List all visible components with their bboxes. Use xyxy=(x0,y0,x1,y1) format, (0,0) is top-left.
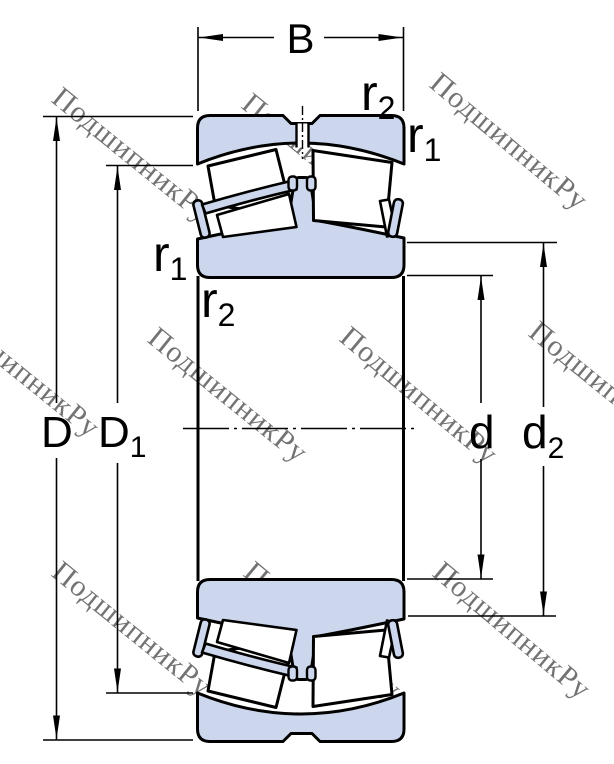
watermark-text: ПодшипникРу xyxy=(427,555,598,706)
label-bore-diameter: d xyxy=(469,406,495,458)
label-fillet-r2-left: r2 xyxy=(201,272,235,333)
d2-arrow-bottom xyxy=(540,592,547,616)
label-fillet-r1-left: r1 xyxy=(153,226,187,287)
b-arrow-right xyxy=(379,34,403,41)
watermark-text: ПодшипникРу xyxy=(46,555,219,704)
label-outer-shoulder-diameter: D1 xyxy=(98,408,146,464)
watermark-text: ПодшипникРу xyxy=(142,321,315,470)
label-outer-diameter: D xyxy=(41,408,73,457)
b-arrow-left xyxy=(199,34,223,41)
watermark-text: ПодшипникРу xyxy=(46,81,219,230)
watermark-text: ПодшипникРу xyxy=(424,66,595,217)
D1-arrow-top xyxy=(114,167,121,191)
d-arrow-top xyxy=(478,277,485,301)
label-inner-shoulder-diameter: d2 xyxy=(522,406,564,465)
D-arrow-bottom xyxy=(53,716,60,740)
D-arrow-top xyxy=(53,118,60,142)
bearing-drawing-canvas: ПодшипникРу ПодшипникРу ПодшипникРу Подш… xyxy=(0,0,614,764)
bearing-cross-section-drawing: ПодшипникРу ПодшипникРу ПодшипникРу Подш… xyxy=(0,0,614,764)
bearing-lower-section xyxy=(193,580,404,742)
label-fillet-r2-top: r2 xyxy=(361,65,395,126)
label-fillet-r1-top: r1 xyxy=(407,107,441,168)
label-width-b: B xyxy=(286,15,314,62)
D1-arrow-bottom xyxy=(114,669,121,693)
d2-arrow-top xyxy=(540,244,547,268)
d-arrow-bottom xyxy=(478,555,485,579)
